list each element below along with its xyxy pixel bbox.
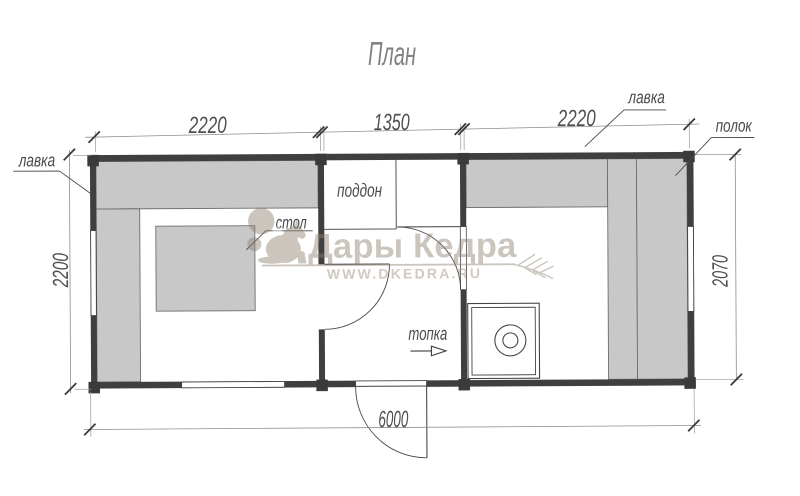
svg-text:2220: 2220 [188, 112, 227, 138]
svg-text:лавка: лавка [628, 87, 665, 107]
svg-text:План: План [368, 35, 416, 72]
svg-text:топка: топка [408, 323, 447, 344]
svg-text:лавка: лавка [18, 150, 55, 170]
svg-text:1350: 1350 [374, 109, 410, 135]
svg-text:6000: 6000 [378, 406, 408, 432]
svg-text:поддон: поддон [337, 181, 382, 202]
svg-text:2200: 2200 [48, 252, 73, 288]
svg-text:2070: 2070 [707, 254, 732, 287]
svg-text:Дары Кедра: Дары Кедра [308, 227, 517, 266]
svg-text:полок: полок [716, 116, 753, 136]
svg-text:WWW.DKEDRA.RU: WWW.DKEDRA.RU [327, 265, 482, 282]
svg-text:2220: 2220 [557, 105, 596, 131]
